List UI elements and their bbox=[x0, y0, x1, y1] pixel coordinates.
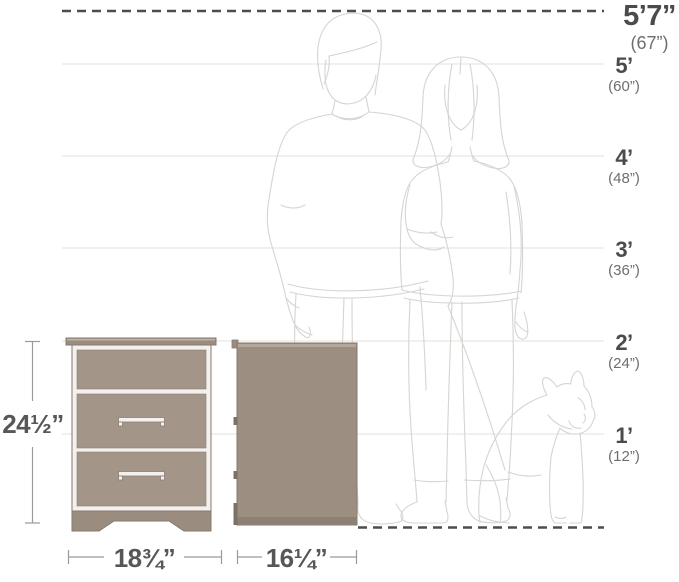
height-marker-inches: (24”) bbox=[592, 356, 656, 371]
product-width-label: 18¾” bbox=[94, 545, 195, 571]
height-marker-4ft: 4’ (48”) bbox=[592, 147, 656, 186]
height-marker-inches: (48”) bbox=[592, 171, 656, 186]
height-marker-3ft: 3’ (36”) bbox=[592, 239, 656, 278]
height-marker-inches: (67”) bbox=[620, 34, 679, 52]
height-marker-feet: 5’7” bbox=[620, 2, 679, 31]
height-marker-5ft7: 5’7” (67”) bbox=[620, 2, 679, 52]
height-marker-inches: (12”) bbox=[592, 449, 656, 464]
side-drawer-edge-lower bbox=[234, 471, 238, 479]
front-base-with-notch bbox=[72, 511, 211, 531]
height-marker-feet: 5’ bbox=[592, 55, 656, 77]
height-marker-feet: 2’ bbox=[592, 332, 656, 354]
dog-silhouette bbox=[479, 371, 595, 523]
nightstand-side-view bbox=[232, 340, 357, 525]
height-marker-feet: 1’ bbox=[592, 425, 656, 447]
height-marker-inches: (60”) bbox=[592, 79, 656, 94]
height-marker-2ft: 2’ (24”) bbox=[592, 332, 656, 371]
height-marker-inches: (36”) bbox=[592, 263, 656, 278]
diagram-canvas bbox=[0, 0, 679, 582]
height-marker-feet: 4’ bbox=[592, 147, 656, 169]
side-base-foot bbox=[234, 503, 238, 525]
front-top-panel bbox=[77, 350, 206, 389]
product-height-label: 24½” bbox=[0, 411, 69, 437]
height-marker-5ft: 5’ (60”) bbox=[592, 55, 656, 94]
side-bottom-strip bbox=[237, 517, 357, 525]
front-top-slab-highlight bbox=[67, 339, 215, 341]
nightstand-front-view bbox=[66, 338, 216, 531]
product-depth-label: 16¼” bbox=[246, 545, 347, 571]
front-drawer-lower bbox=[77, 452, 206, 506]
size-comparison-diagram: 5’7” (67”) 5’ (60”) 4’ (48”) 3’ (36”) 2’… bbox=[0, 0, 679, 582]
height-marker-feet: 3’ bbox=[592, 239, 656, 261]
side-panel-body bbox=[237, 343, 357, 525]
height-marker-1ft: 1’ (12”) bbox=[592, 425, 656, 464]
side-top-highlight bbox=[238, 344, 356, 347]
side-drawer-edge-upper bbox=[234, 417, 238, 425]
